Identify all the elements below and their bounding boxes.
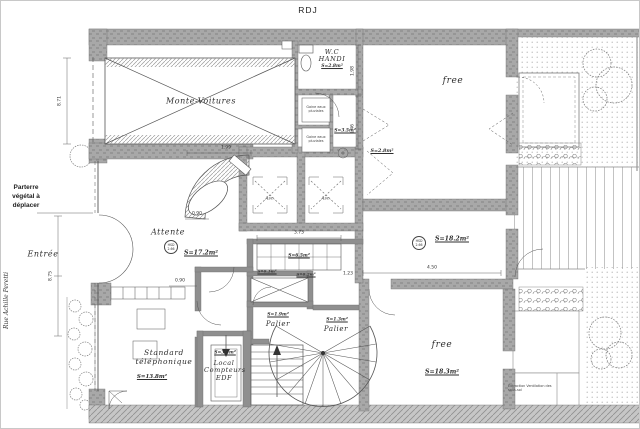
label-entree: Entrée xyxy=(27,250,58,259)
sink-icon xyxy=(282,41,292,49)
area-palier-left: S=1.9m² xyxy=(267,313,289,318)
dim-facade: 8.75 xyxy=(49,271,54,281)
area-standard: S=13.8m² xyxy=(137,374,167,380)
area-attente: S=17.2m² xyxy=(184,250,218,257)
planter-row-top xyxy=(519,143,581,165)
hedge-left xyxy=(67,145,95,410)
elevator-2-label: Asc. xyxy=(321,197,331,202)
area-gaine-4: S=0.2m² xyxy=(296,272,315,277)
room-palier-left: Palier xyxy=(266,320,290,328)
area-skylight: S=6.5m² xyxy=(288,254,310,259)
gaine-1-label: Gaine eaux pluviales xyxy=(304,106,328,114)
room-free-bottom: free xyxy=(432,340,453,350)
room-free-top: free xyxy=(443,76,464,86)
straight-staircase xyxy=(251,345,303,405)
crossed-shaft xyxy=(251,278,308,302)
room-local-edf: Local Compteurs EDF xyxy=(204,360,244,382)
room-monte-voitures: Monte-Voitures xyxy=(166,97,236,106)
note-extraction: Extraction Ventilation des sous-sol xyxy=(508,385,556,393)
area-gaine-3: S=0.3m² xyxy=(257,269,276,274)
hsd-marker-1: HSD 2.66 xyxy=(164,240,178,254)
page-title: RDJ xyxy=(298,5,318,15)
dim-desk: 1.99 xyxy=(221,146,231,151)
wood-deck xyxy=(513,167,640,269)
dim-wc-b: 1.46 xyxy=(351,124,356,134)
gaine-2-label: Gaine eaux pluviales xyxy=(304,136,328,144)
terrace xyxy=(519,73,579,147)
room-wc-handi: W.C HANDI S=2.8m² xyxy=(318,49,346,69)
toilet-icon xyxy=(299,45,313,71)
elevator-1-label: Asc. xyxy=(265,197,275,202)
lightwell xyxy=(513,311,579,373)
street-label: Rue Achille Peretti xyxy=(3,229,10,329)
dim-123: 1.23 xyxy=(343,272,353,277)
entrance-doors xyxy=(99,215,133,283)
area-sas: S=2.8m² xyxy=(370,148,393,154)
area-hall: S=18.2m² xyxy=(435,236,469,243)
area-local-edf: S=3.4m² xyxy=(214,351,236,356)
note-parterre: Parterre végétal à déplacer xyxy=(3,184,49,210)
dim-hall-w: 4.50 xyxy=(427,266,437,271)
area-palier-right: S=1.3m² xyxy=(326,318,348,323)
dim-skylight: 3.73 xyxy=(294,231,304,236)
floor-plan-page: RDJ Rue Achille Peretti Parterre végétal… xyxy=(0,0,640,429)
dim-wc-a: 1.98 xyxy=(351,66,356,76)
planter-row-bottom xyxy=(519,287,583,311)
room-standard: Standard téléphonique xyxy=(134,348,194,366)
hsd-marker-2: HSD 2.66 xyxy=(412,236,426,250)
room-palier-right: Palier xyxy=(324,325,348,333)
garden xyxy=(506,29,640,409)
area-free-bottom: S=18.3m² xyxy=(425,369,459,376)
street-facade xyxy=(93,57,98,391)
dim-090a: 0.90 xyxy=(192,212,202,217)
dim-090b: 0.90 xyxy=(175,279,185,284)
room-attente: Attente xyxy=(151,228,185,237)
dim-mv-height: 8.71 xyxy=(58,96,63,106)
